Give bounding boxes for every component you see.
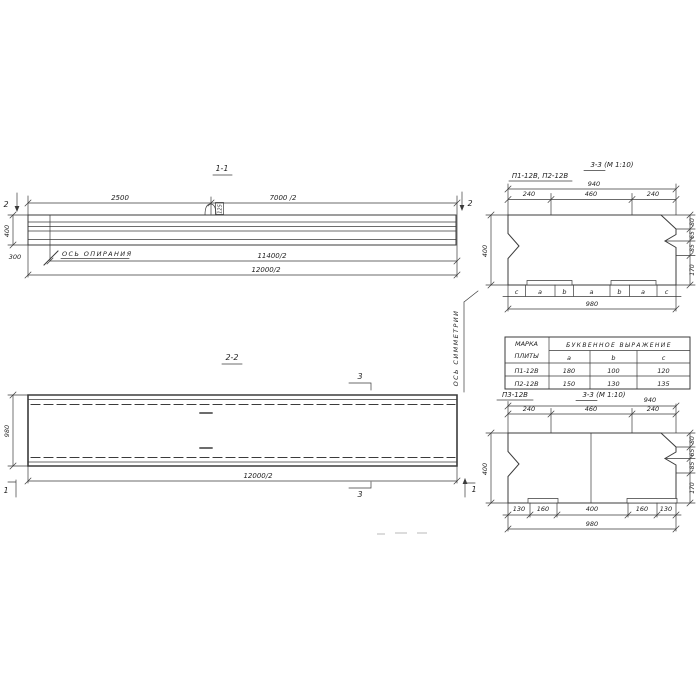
cut-2-arrows <box>15 205 465 212</box>
elevation-dim-ticks <box>10 200 460 278</box>
plan-dim-lines <box>8 395 457 483</box>
sec-top-dim-240-right: 240 <box>647 190 659 198</box>
sec-top-dim-170: 170 <box>689 264 696 276</box>
sec-top-letter-c1: c <box>515 288 519 296</box>
lifting-loop <box>205 204 216 215</box>
cut-2-label-right: 2 <box>467 199 472 208</box>
section-1-1-elevation: 1-1 125 2500 7000 /2 2 2 400 300 ОСЬ ОПИ… <box>3 164 473 278</box>
row1-c: 120 <box>657 367 669 375</box>
technical-drawing: 1-1 125 2500 7000 /2 2 2 400 300 ОСЬ ОПИ… <box>0 0 700 700</box>
plan-dim-ticks <box>10 392 460 484</box>
table-col-c-header: c <box>662 354 666 362</box>
sec-bot-dim-160-left: 160 <box>537 505 549 513</box>
beam-outline <box>28 215 456 245</box>
dim-7000-label: 7000 /2 <box>270 194 297 202</box>
symmetry-axis-label: ОСЬ СИММЕТРИИ <box>452 310 460 387</box>
beam-layer-lines <box>28 222 456 240</box>
sec-top-dim-940: 940 <box>588 180 600 188</box>
table-col1-header-line1: МАРКА <box>515 340 538 348</box>
cut-3-label-bottom: 3 <box>357 490 362 499</box>
dim-980-label: 980 <box>3 425 11 437</box>
section-3-3-top: П1-12В, П2-12В 3-3 (М 1:10) 940 240 460 … <box>481 161 696 312</box>
faint-smudge <box>377 533 427 534</box>
sec-top-letter-a1: a <box>538 288 542 296</box>
sec-top-dim-400: 400 <box>481 245 489 257</box>
section-2-2-plan: 2-2 3 3 1 1 980 12000/2 ОСЬ СИММЕТРИИ <box>3 291 478 499</box>
sec-bot-dim-85: 85 <box>689 462 696 470</box>
sec-top-dim-80: 80 <box>689 218 696 226</box>
table-col-b-header: b <box>611 354 615 362</box>
dim-300-label: 300 <box>9 253 21 261</box>
sec-top-letter-a2: a <box>590 288 594 296</box>
sec-bot-dim-130-right: 130 <box>660 505 672 513</box>
sec-bot-body <box>508 433 676 503</box>
row1-b: 100 <box>607 367 619 375</box>
sec-top-bottom-slots <box>527 281 656 286</box>
dim-12000-label: 12000/2 <box>251 266 281 274</box>
sec-top-dim-65: 65 <box>689 231 696 239</box>
sec-bot-dim-400-left: 400 <box>481 463 489 475</box>
sec-bot-dim-130-left: 130 <box>513 505 525 513</box>
sec-top-body <box>508 215 676 285</box>
cut-1-arrow <box>463 478 468 484</box>
plan-outline <box>28 395 457 466</box>
dim-400-label: 400 <box>3 225 11 237</box>
sec-top-letter-c2: c <box>665 288 669 296</box>
sec-bot-plate-label: П3-12В <box>502 391 528 399</box>
sec-top-dim-460: 460 <box>585 190 597 198</box>
sec-top-plate-label: П1-12В, П2-12В <box>512 172 569 180</box>
elevation-dim-lines <box>8 192 462 277</box>
sec-bot-dim-460: 460 <box>585 405 597 413</box>
sec-bot-title: 3-3 (М 1:10) <box>582 391 625 399</box>
row2-a: 150 <box>563 380 575 388</box>
sec-top-title: 3-3 (М 1:10) <box>590 161 633 169</box>
sec-top-dim-85: 85 <box>689 244 696 252</box>
sec-top-letter-b2: b <box>617 288 621 296</box>
cut-1-label-right: 1 <box>471 485 476 494</box>
sec-bot-dim-65: 65 <box>689 449 696 457</box>
cut-2-label-left: 2 <box>3 200 8 209</box>
symmetry-axis-line <box>464 291 478 392</box>
sec-top-letter-a3: a <box>641 288 645 296</box>
drawing-sheet: 1-1 125 2500 7000 /2 2 2 400 300 ОСЬ ОПИ… <box>0 0 700 700</box>
dim-11400-label: 11400/2 <box>257 252 287 260</box>
sec-top-dim-240-left: 240 <box>523 190 535 198</box>
sec-bot-dim-240-right: 240 <box>647 405 659 413</box>
table-col1-header-line2: ПЛИТЫ <box>515 352 540 360</box>
sec-bot-dim-400-mid: 400 <box>586 505 598 513</box>
plan-edge-lines <box>28 400 457 463</box>
table-span-header: БУКВЕННОЕ ВЫРАЖЕНИЕ <box>566 342 672 349</box>
support-axis-label: ОСЬ ОПИРАНИЯ <box>62 250 132 258</box>
plan-center-marks <box>200 413 212 448</box>
sec-top-letter-b1: b <box>562 288 566 296</box>
sec-bot-dim-80: 80 <box>689 436 696 444</box>
sec-bot-dim-170: 170 <box>689 482 696 494</box>
loop-label: 125 <box>218 204 224 214</box>
section-1-1-title: 1-1 <box>215 164 228 173</box>
table-col-a-header: a <box>567 354 571 362</box>
cut-3-label-top: 3 <box>357 372 362 381</box>
plan-dashed-lines <box>31 405 455 458</box>
sec-bot-dim-940: 940 <box>644 396 656 404</box>
row1-a: 180 <box>563 367 575 375</box>
table-row: П1-12В 180 100 120 <box>514 367 669 375</box>
row2-c: 135 <box>657 380 669 388</box>
sec-bot-bottom-slots <box>528 499 677 504</box>
dim-2500-label: 2500 <box>111 194 129 202</box>
table-row: П2-12В 150 130 135 <box>514 380 669 388</box>
section-2-2-title: 2-2 <box>225 353 238 362</box>
sec-top-dim-980: 980 <box>586 300 598 308</box>
support-axis-slash <box>44 251 58 265</box>
cut-1-label-left: 1 <box>3 486 8 495</box>
row2-b: 130 <box>607 380 619 388</box>
row1-mark: П1-12В <box>514 367 539 375</box>
sec-bot-dim-160-right: 160 <box>636 505 648 513</box>
row2-mark: П2-12В <box>514 380 539 388</box>
sec-bot-dim-240-left: 240 <box>523 405 535 413</box>
plate-table: МАРКА ПЛИТЫ БУКВЕННОЕ ВЫРАЖЕНИЕ a b c П1… <box>505 337 690 389</box>
cut-mark-lines <box>8 383 475 497</box>
plan-dim-12000-label: 12000/2 <box>243 472 273 480</box>
section-3-3-bottom: П3-12В 3-3 (М 1:10) 940 240 460 240 400 … <box>481 391 696 532</box>
sec-bot-dim-980: 980 <box>586 520 598 528</box>
